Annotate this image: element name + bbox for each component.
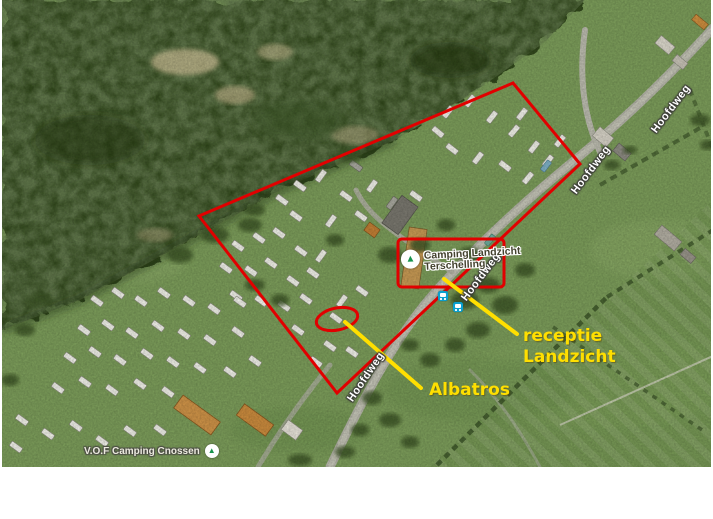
aerial-photo: Hoofdweg Hoofdweg Hoofdweg Hoofdweg ▲ Ca…	[2, 0, 711, 467]
poi-cnossen: V.O.F Camping Cnossen ▲	[84, 444, 219, 458]
receptie-annotation: receptie Landzicht	[523, 326, 616, 368]
bus-stop-icon-1	[438, 291, 448, 301]
bus-stop-icon-2	[453, 302, 463, 312]
camping-tent-glyph: ▲	[405, 254, 415, 265]
albatros-annotation: Albatros	[429, 380, 510, 401]
receptie-annotation-line2: Landzicht	[523, 347, 616, 368]
poi-cnossen-name: V.O.F Camping Cnossen	[84, 446, 200, 457]
camping-tent-glyph-2: ▲	[208, 446, 216, 456]
screenshot-root: Hoofdweg Hoofdweg Hoofdweg Hoofdweg ▲ Ca…	[0, 0, 713, 519]
receptie-annotation-line1: receptie	[523, 326, 616, 347]
camping-tent-icon: ▲	[400, 249, 420, 269]
camping-tent-icon-2: ▲	[205, 444, 219, 458]
